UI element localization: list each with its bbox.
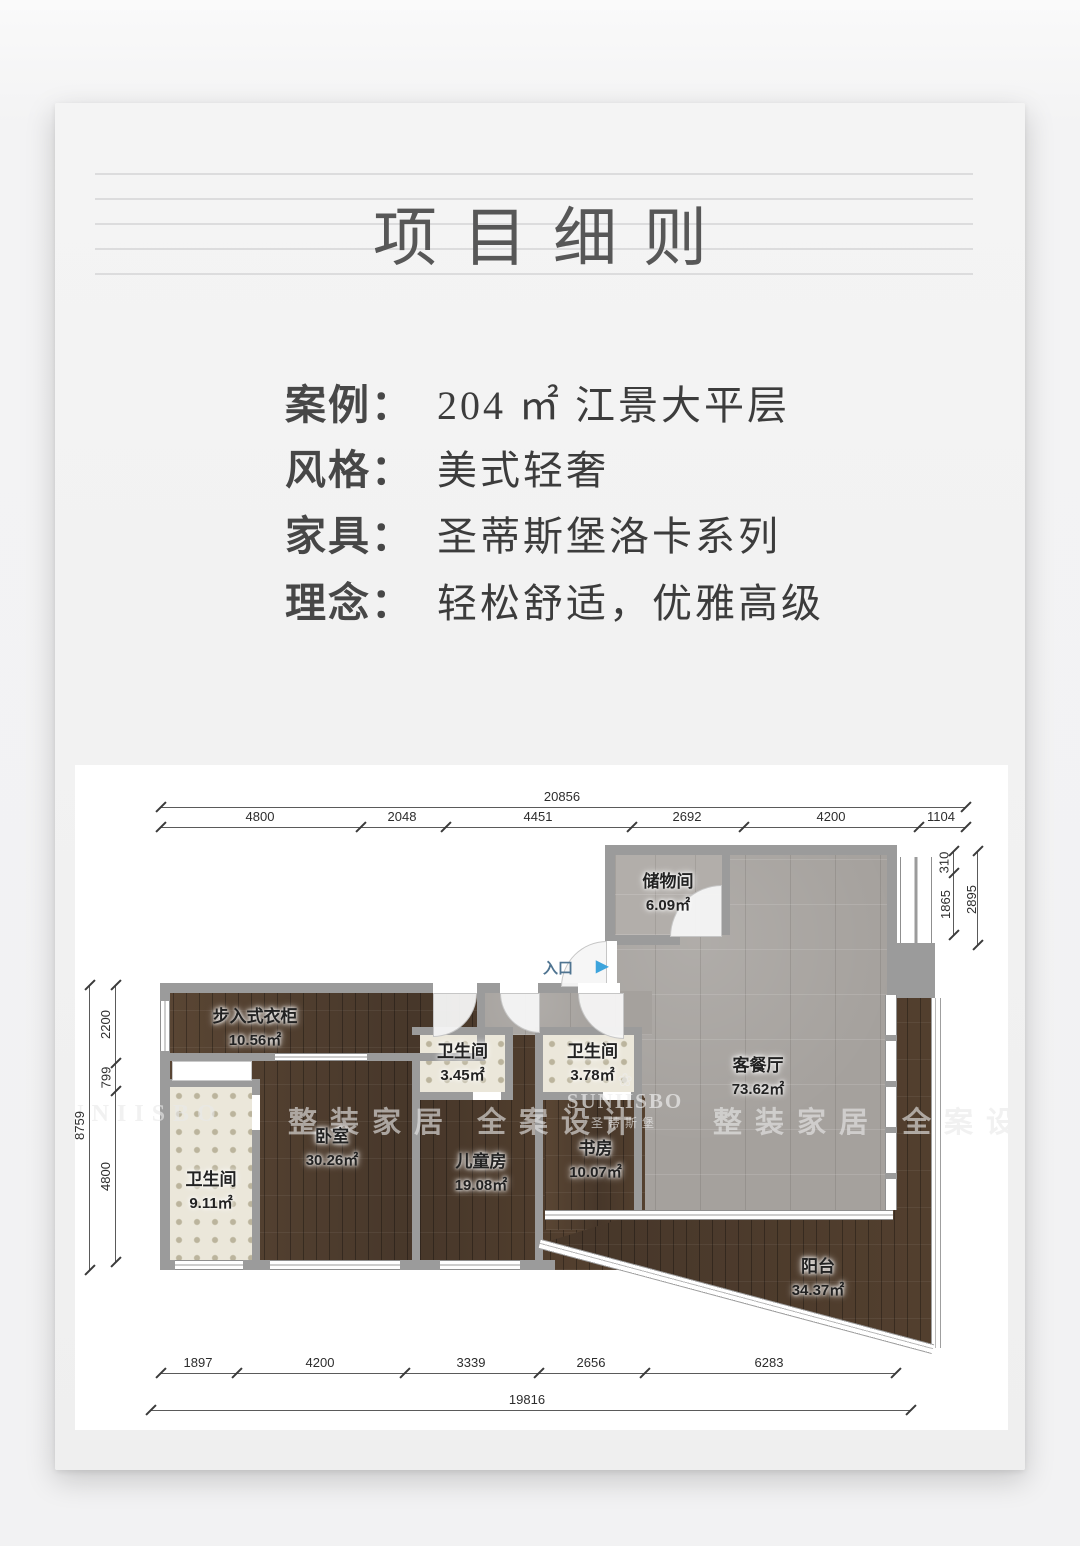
detail-row-case: 案例： 204 ㎡ 江景大平层 [285, 371, 790, 431]
dim-label: 1897 [184, 1355, 213, 1370]
dimension-line [115, 985, 116, 1262]
room-name: 客餐厅 [688, 1054, 828, 1079]
dim-tick [948, 929, 959, 940]
room-label-balcony: 阳台 34.37㎡ [748, 1255, 888, 1301]
room-name: 卧室 [257, 1125, 407, 1150]
room-area: 6.09㎡ [618, 895, 718, 917]
wall [887, 850, 897, 943]
detail-label: 案例： [285, 371, 437, 431]
page-title: 项目细则 [55, 187, 1025, 279]
room-label-bath-378: 卫生间 3.78㎡ [545, 1040, 640, 1086]
brand-watermark: SUNIISBO [565, 1089, 685, 1114]
room-name: 卫生间 [171, 1168, 251, 1193]
wall [722, 850, 730, 935]
room-label-bedroom: 卧室 30.26㎡ [257, 1125, 407, 1171]
window [270, 1260, 400, 1270]
room-name: 步入式衣柜 [180, 1005, 330, 1030]
wall [605, 845, 615, 943]
detail-value: 204 ㎡ 江景大平层 [437, 373, 790, 431]
room-label-storage: 储物间 6.09㎡ [618, 870, 718, 916]
brand-watermark: SUNIISBO [75, 1101, 224, 1128]
dim-label: 4200 [817, 809, 846, 824]
room-label-living: 客餐厅 73.62㎡ [688, 1054, 828, 1100]
door-gap [500, 983, 538, 993]
room-label-kids-room: 儿童房 19.08㎡ [406, 1150, 556, 1196]
header-rule-line [95, 173, 973, 175]
wall [505, 1027, 513, 1100]
dimension-line [150, 1410, 910, 1411]
dim-label: 2692 [673, 809, 702, 824]
dim-label: 2656 [577, 1355, 606, 1370]
slogan-watermark: 整装家居 全案设计 [713, 1099, 1008, 1141]
dimension-line [953, 851, 954, 935]
detail-row-furniture: 家具： 圣蒂斯堡洛卡系列 [285, 502, 781, 562]
dim-label: 2895 [964, 885, 979, 914]
wall [605, 845, 897, 855]
room-area: 9.11㎡ [171, 1193, 251, 1215]
window [175, 1260, 243, 1270]
window [160, 1001, 170, 1051]
detail-value: 轻松舒适，优雅高级 [437, 571, 824, 629]
wall [887, 943, 935, 998]
room-area: 10.07㎡ [543, 1162, 648, 1184]
brand-cn-watermark: 圣蒂斯堡 [565, 1114, 685, 1131]
dim-tick [110, 1057, 121, 1068]
dim-label: 20856 [544, 789, 580, 804]
dim-label: 4451 [524, 809, 553, 824]
door-gap [433, 983, 477, 993]
room-area: 73.62㎡ [688, 1079, 828, 1101]
dim-label: 1865 [938, 890, 953, 919]
room-name: 阳台 [748, 1255, 888, 1280]
dim-label: 6283 [755, 1355, 784, 1370]
detail-label: 理念： [285, 569, 437, 629]
room-name: 卫生间 [420, 1040, 505, 1065]
bay-window [900, 857, 932, 943]
sliding-door [275, 1053, 367, 1061]
room-area: 10.56㎡ [180, 1030, 330, 1052]
dim-label: 4800 [246, 809, 275, 824]
dim-label: 8759 [75, 1111, 87, 1140]
dimension-line [160, 1373, 895, 1374]
page: 项目细则 案例： 204 ㎡ 江景大平层 风格： 美式轻奢 家具： 圣蒂斯堡洛卡… [0, 0, 1080, 1546]
room-name: 书房 [543, 1137, 648, 1162]
balcony-rail [931, 998, 941, 1348]
wall [535, 1027, 543, 1260]
room-name: 储物间 [618, 870, 718, 895]
floor-plan: SUNIISBO 整装家居 全案设计 ❀ SUNIISBO 圣蒂斯堡 整装家居 … [75, 765, 1008, 1430]
detail-label: 风格： [285, 436, 437, 496]
dim-tick [972, 939, 983, 950]
dim-label: 1104 [927, 809, 955, 824]
dim-label: 19816 [509, 1392, 545, 1407]
entrance-label: 入口 [543, 957, 573, 978]
room-label-closet: 步入式衣柜 10.56㎡ [180, 1005, 330, 1051]
window [440, 1260, 520, 1270]
room-label-bath-345: 卫生间 3.45㎡ [420, 1040, 505, 1086]
wall [535, 1027, 642, 1035]
dim-tick [84, 979, 95, 990]
dimension-line [160, 807, 965, 808]
room-label-bath-911: 卫生间 9.11㎡ [171, 1168, 251, 1214]
bath-vanity [172, 1061, 252, 1081]
dimension-line [160, 827, 965, 828]
dim-tick [84, 1264, 95, 1275]
window-sill [545, 1210, 893, 1220]
dimension-line [89, 985, 90, 1270]
wall [412, 1027, 513, 1035]
room-label-study: 书房 10.07㎡ [543, 1137, 648, 1183]
dim-label: 4200 [306, 1355, 335, 1370]
room-area: 30.26㎡ [257, 1150, 407, 1172]
dim-tick [110, 979, 121, 990]
dim-label: 799 [98, 1067, 113, 1089]
detail-value: 圣蒂斯堡洛卡系列 [437, 504, 781, 562]
dim-label: 3339 [457, 1355, 486, 1370]
dim-tick [110, 1256, 121, 1267]
room-name: 儿童房 [406, 1150, 556, 1175]
detail-row-style: 风格： 美式轻奢 [285, 436, 609, 496]
dim-label: 2200 [98, 1010, 113, 1039]
content-card: 项目细则 案例： 204 ㎡ 江景大平层 风格： 美式轻奢 家具： 圣蒂斯堡洛卡… [55, 103, 1025, 1470]
entrance-arrow-icon: ▶ [596, 956, 608, 976]
dim-label: 2048 [388, 809, 417, 824]
detail-label: 家具： [285, 502, 437, 562]
room-area: 3.45㎡ [420, 1065, 505, 1087]
dim-label: 4800 [98, 1162, 113, 1191]
dim-tick [972, 845, 983, 856]
room-area: 19.08㎡ [406, 1175, 556, 1197]
room-area: 3.78㎡ [545, 1065, 640, 1087]
door-gap [578, 983, 620, 993]
wall [160, 983, 615, 993]
detail-value: 美式轻奢 [437, 438, 609, 496]
detail-row-concept: 理念： 轻松舒适，优雅高级 [285, 569, 824, 629]
room-name: 卫生间 [545, 1040, 640, 1065]
room-area: 34.37㎡ [748, 1280, 888, 1302]
